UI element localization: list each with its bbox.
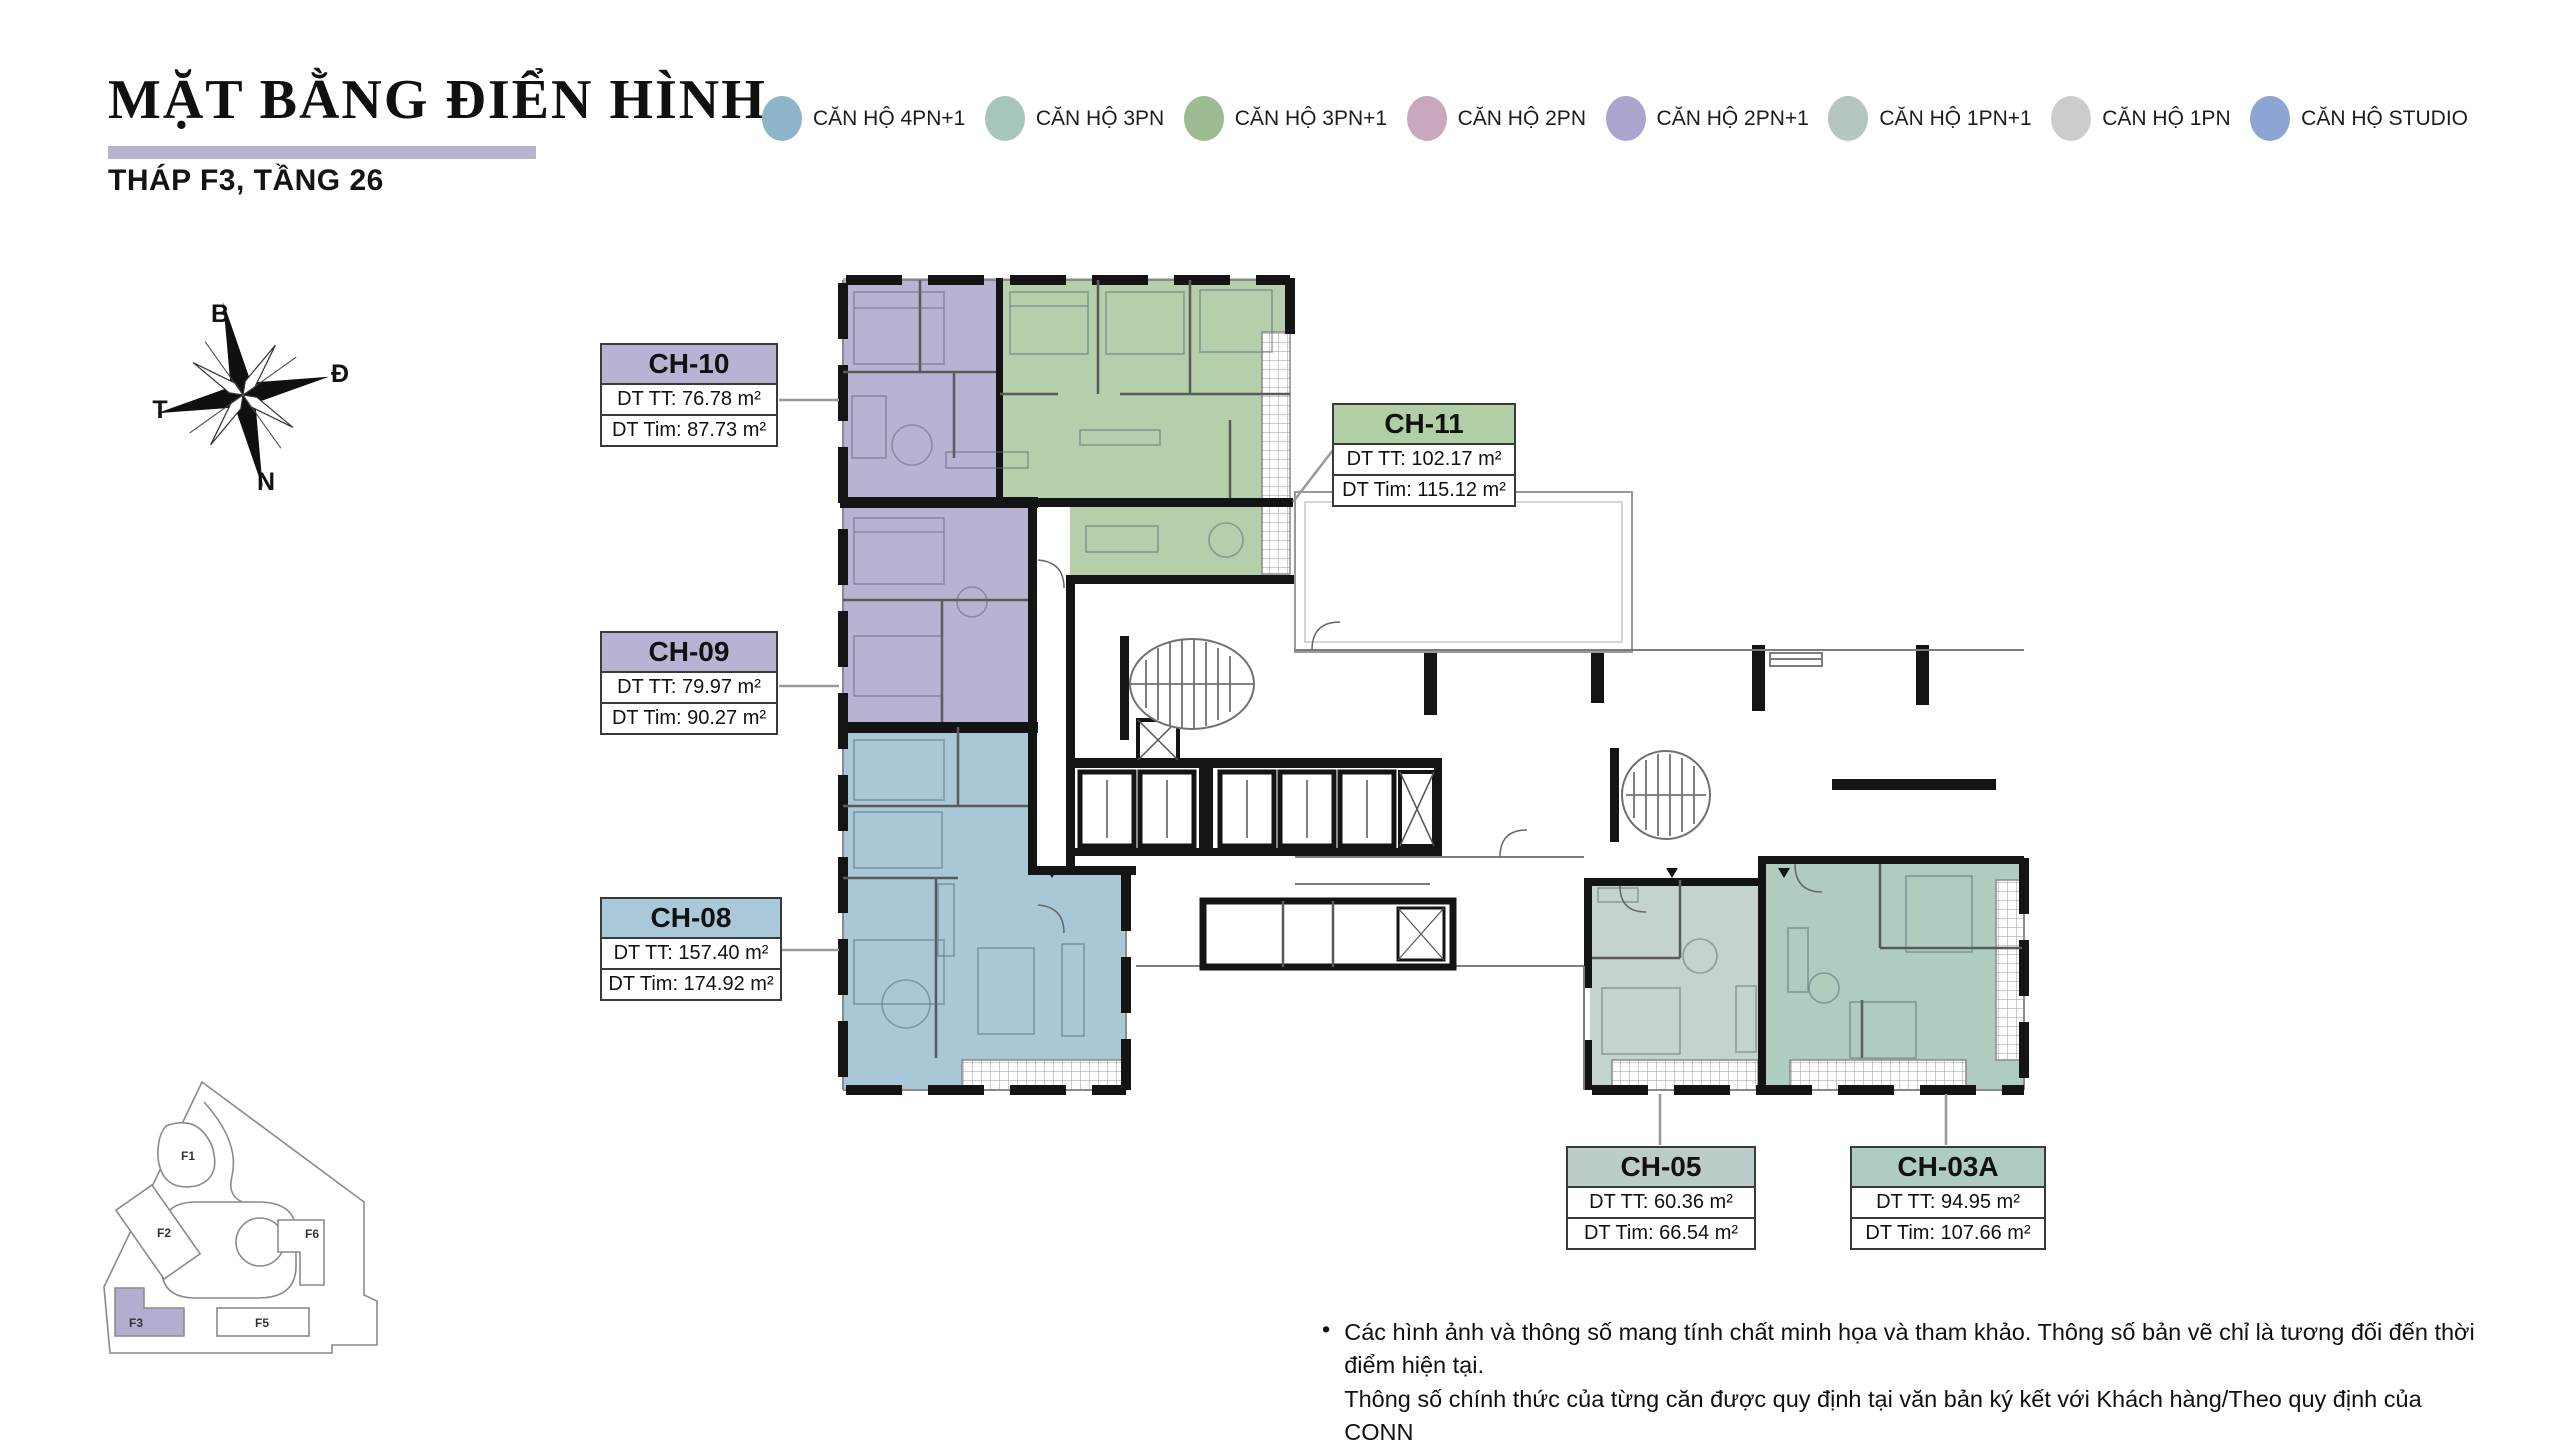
unit-area-tim: DT Tim: 87.73 m²	[600, 415, 778, 447]
legend-item-3pn: CĂN HỘ 3PN	[985, 96, 1164, 141]
legend-label: CĂN HỘ 3PN	[1036, 107, 1164, 131]
legend-item-1pn1: CĂN HỘ 1PN+1	[1828, 96, 2031, 141]
site-label-f5: F5	[255, 1316, 269, 1330]
service-room	[1203, 901, 1453, 967]
legend-swatch	[1606, 96, 1646, 141]
unit-area-tim: DT Tim: 90.27 m²	[600, 703, 778, 735]
site-label-f3: F3	[129, 1316, 143, 1330]
unit-area-tt: DT TT: 102.17 m²	[1332, 444, 1516, 476]
unit-area-tt: DT TT: 76.78 m²	[600, 384, 778, 416]
elevator-cabin	[1080, 772, 1394, 846]
title-underline	[108, 146, 536, 159]
site-pond-island	[236, 1218, 284, 1266]
legend-item-studio: CĂN HỘ STUDIO	[2250, 96, 2468, 141]
legend-swatch	[1828, 96, 1868, 141]
legend: CĂN HỘ 4PN+1 CĂN HỘ 3PN CĂN HỘ 3PN+1 CĂN…	[762, 96, 2468, 141]
legend-label: CĂN HỘ 2PN+1	[1657, 107, 1809, 131]
unit-area-tim: DT Tim: 174.92 m²	[600, 969, 782, 1001]
compass-north-label: B	[211, 300, 229, 328]
page-subtitle: THÁP F3, TẦNG 26	[108, 164, 384, 198]
legend-item-3pn1: CĂN HỘ 3PN+1	[1184, 96, 1387, 141]
unit-area-tt: DT TT: 94.95 m²	[1850, 1187, 2046, 1219]
unit-ch09-region	[843, 504, 1031, 726]
compass-south-label: N	[257, 468, 275, 496]
legend-item-2pn: CĂN HỘ 2PN	[1407, 96, 1586, 141]
legend-label: CĂN HỘ 1PN+1	[1879, 107, 2031, 131]
legend-swatch	[762, 96, 802, 141]
legend-label: CĂN HỘ 2PN	[1458, 107, 1586, 131]
unit-area-tim: DT Tim: 107.66 m²	[1850, 1218, 2046, 1250]
legend-item-2pn1: CĂN HỘ 2PN+1	[1606, 96, 1809, 141]
void-outline	[1295, 492, 1632, 652]
legend-label: CĂN HỘ 3PN+1	[1235, 107, 1387, 131]
legend-item-4pn1: CĂN HỘ 4PN+1	[762, 96, 965, 141]
legend-label: CĂN HỘ STUDIO	[2301, 107, 2468, 131]
unit-area-tt: DT TT: 157.40 m²	[600, 938, 782, 970]
compass-west-label: T	[152, 396, 167, 424]
unit-id: CH-10	[600, 343, 778, 385]
unit-ch11-region	[998, 278, 1290, 575]
entry-marker	[1666, 868, 1678, 878]
unit-area-tim: DT Tim: 115.12 m²	[1332, 475, 1516, 507]
unit-id: CH-08	[600, 897, 782, 939]
unit-id: CH-09	[600, 631, 778, 673]
legend-item-1pn: CĂN HỘ 1PN	[2051, 96, 2230, 141]
page-title: MẶT BẰNG ĐIỂN HÌNH	[108, 68, 767, 132]
unit-label-ch11: CH-11 DT TT: 102.17 m² DT Tim: 115.12 m²	[1332, 403, 1516, 507]
legend-swatch	[2250, 96, 2290, 141]
legend-swatch	[2051, 96, 2091, 141]
unit-id: CH-05	[1566, 1146, 1756, 1188]
site-label-f1: F1	[181, 1149, 195, 1163]
plan-canvas: B Đ T N F1 F2 F3 F5 F6	[0, 0, 2560, 1440]
unit-area-tim: DT Tim: 66.54 m²	[1566, 1218, 1756, 1250]
unit-ch03a-region	[1764, 858, 2024, 1090]
staircase-right	[1610, 748, 1710, 842]
site-label-f2: F2	[157, 1226, 171, 1240]
unit-id: CH-11	[1332, 403, 1516, 445]
unit-label-ch03a: CH-03A DT TT: 94.95 m² DT Tim: 107.66 m²	[1850, 1146, 2046, 1250]
legend-label: CĂN HỘ 1PN	[2102, 107, 2230, 131]
unit-ch05-region	[1590, 880, 1760, 1090]
legend-swatch	[1407, 96, 1447, 141]
site-label-f6: F6	[305, 1227, 319, 1241]
unit-label-ch10: CH-10 DT TT: 76.78 m² DT Tim: 87.73 m²	[600, 343, 778, 447]
unit-label-ch09: CH-09 DT TT: 79.97 m² DT Tim: 90.27 m²	[600, 631, 778, 735]
unit-area-tt: DT TT: 79.97 m²	[600, 672, 778, 704]
legend-swatch	[1184, 96, 1224, 141]
disclaimer-line2: Thông số chính thức của từng căn được qu…	[1344, 1383, 2482, 1440]
floor-plan-page: B Đ T N F1 F2 F3 F5 F6 MẶT BẰNG ĐIỂN HÌN…	[0, 0, 2560, 1440]
compass-east-label: Đ	[331, 360, 349, 388]
unit-label-ch05: CH-05 DT TT: 60.36 m² DT Tim: 66.54 m²	[1566, 1146, 1756, 1250]
legend-label: CĂN HỘ 4PN+1	[813, 107, 965, 131]
unit-id: CH-03A	[1850, 1146, 2046, 1188]
legend-swatch	[985, 96, 1025, 141]
disclaimer-line1: Các hình ảnh và thông số mang tính chất …	[1344, 1316, 2482, 1383]
disclaimer-bullet: •	[1322, 1316, 1330, 1440]
compass-rose: B Đ T N	[137, 284, 349, 506]
unit-area-tt: DT TT: 60.36 m²	[1566, 1187, 1756, 1219]
site-plan: F1 F2 F3 F5 F6	[104, 1082, 377, 1353]
unit-label-ch08: CH-08 DT TT: 157.40 m² DT Tim: 174.92 m²	[600, 897, 782, 1001]
disclaimer: • Các hình ảnh và thông số mang tính chấ…	[1322, 1316, 2482, 1440]
